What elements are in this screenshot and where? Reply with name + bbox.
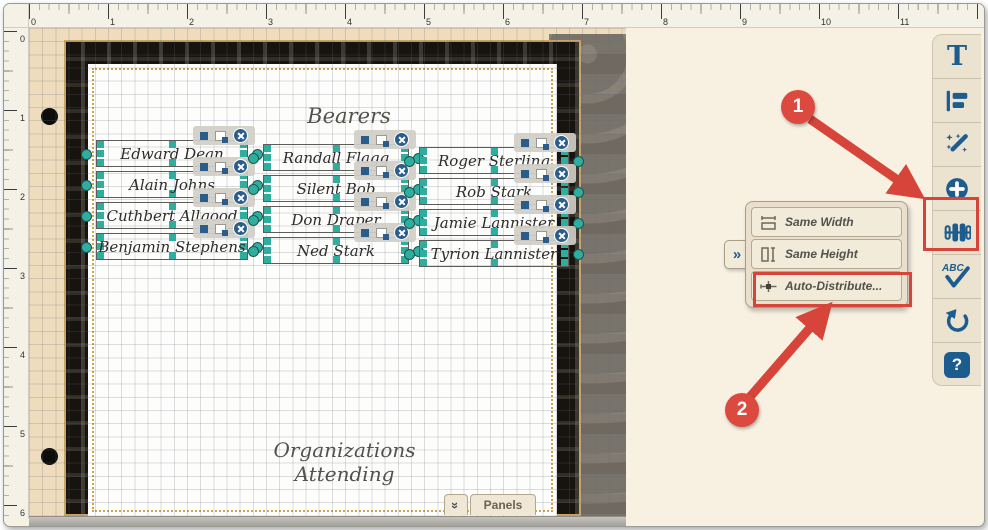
panels-tab-label: Panels <box>484 498 523 512</box>
duplicate-icon[interactable] <box>376 166 387 176</box>
text-object-label: Tyrion Lannister <box>431 245 558 263</box>
ruler-number: 0 <box>20 34 25 44</box>
ruler-number: 5 <box>20 429 25 439</box>
horizontal-scrollbar[interactable] <box>29 516 626 527</box>
annotation-box-distribute-tool <box>923 197 979 251</box>
app-window: 0 1 2 3 4 5 6 7 8 9 10 11 0 1 2 3 4 5 6 … <box>3 3 985 527</box>
object-mini-toolbar <box>193 157 255 176</box>
ruler-number: 0 <box>31 17 36 27</box>
style-icon[interactable] <box>361 229 369 237</box>
delete-icon[interactable] <box>554 166 569 181</box>
delete-icon[interactable] <box>394 132 409 147</box>
callout-number: 2 <box>737 399 748 421</box>
duplicate-icon[interactable] <box>215 131 226 141</box>
spellcheck-tool-button[interactable]: ABC <box>933 255 981 299</box>
menu-item-label: Same Width <box>785 215 854 229</box>
object-mini-toolbar <box>514 133 576 152</box>
magic-wand-icon <box>944 132 970 158</box>
duplicate-icon[interactable] <box>215 224 226 234</box>
chevron-double-down-icon: » <box>448 501 463 508</box>
panels-tab[interactable]: Panels <box>470 494 536 515</box>
text-object[interactable]: Benjamin Stephens <box>96 233 248 260</box>
help-tool-button[interactable]: ? <box>933 343 981 387</box>
delete-icon[interactable] <box>233 190 248 205</box>
spellcheck-icon: ABC <box>942 262 972 292</box>
ruler-number: 2 <box>189 17 194 27</box>
magic-wand-tool-button[interactable] <box>933 123 981 167</box>
ruler-number: 11 <box>900 17 909 27</box>
align-icon <box>944 88 970 114</box>
help-icon: ? <box>944 352 970 378</box>
vertical-ruler: 0 1 2 3 4 5 6 <box>4 28 29 519</box>
menu-item-label: Same Height <box>785 247 858 261</box>
style-icon[interactable] <box>200 132 208 140</box>
delete-icon[interactable] <box>233 159 248 174</box>
annotation-box-auto-distribute <box>753 272 912 307</box>
duplicate-icon[interactable] <box>376 135 387 145</box>
text-object-label: Ned Stark <box>297 242 375 260</box>
design-canvas[interactable]: Bearers Edward Dean Alain Johns Cuthbert… <box>29 28 626 516</box>
chevron-double-right-icon: » <box>733 246 741 263</box>
text-object[interactable]: Ned Stark <box>263 237 409 264</box>
style-icon[interactable] <box>361 136 369 144</box>
duplicate-icon[interactable] <box>536 231 547 241</box>
delete-icon[interactable] <box>554 197 569 212</box>
text-tool-icon: T <box>947 43 967 70</box>
align-tool-button[interactable] <box>933 79 981 123</box>
text-object[interactable]: Tyrion Lannister <box>419 240 569 267</box>
delete-icon[interactable] <box>233 128 248 143</box>
duplicate-icon[interactable] <box>215 193 226 203</box>
object-mini-toolbar <box>193 188 255 207</box>
ruler-number: 3 <box>268 17 273 27</box>
duplicate-icon[interactable] <box>376 228 387 238</box>
duplicate-icon[interactable] <box>376 197 387 207</box>
delete-icon[interactable] <box>554 135 569 150</box>
callout-number: 1 <box>793 96 804 118</box>
ruler-number: 2 <box>20 192 25 202</box>
duplicate-icon[interactable] <box>536 200 547 210</box>
ruler-number: 7 <box>584 17 589 27</box>
style-icon[interactable] <box>200 163 208 171</box>
punch-hole <box>41 108 58 125</box>
callout-step-1: 1 <box>781 90 815 124</box>
style-icon[interactable] <box>200 225 208 233</box>
ruler-number: 6 <box>505 17 510 27</box>
object-mini-toolbar <box>514 195 576 214</box>
ruler-number: 9 <box>742 17 747 27</box>
object-mini-toolbar <box>514 164 576 183</box>
ruler-number: 10 <box>821 17 831 27</box>
style-icon[interactable] <box>521 201 529 209</box>
menu-item-same-height[interactable]: Same Height <box>751 239 902 269</box>
menu-item-same-width[interactable]: Same Width <box>751 207 902 237</box>
duplicate-icon[interactable] <box>215 162 226 172</box>
style-icon[interactable] <box>361 167 369 175</box>
style-icon[interactable] <box>521 139 529 147</box>
ruler-number: 5 <box>426 17 431 27</box>
style-icon[interactable] <box>361 198 369 206</box>
object-mini-toolbar <box>354 130 416 149</box>
object-mini-toolbar <box>514 226 576 245</box>
style-icon[interactable] <box>521 170 529 178</box>
same-width-icon <box>760 214 777 231</box>
delete-icon[interactable] <box>554 228 569 243</box>
callout-step-2: 2 <box>725 393 759 427</box>
ruler-number: 1 <box>20 113 25 123</box>
rotate-tool-button[interactable] <box>933 299 981 343</box>
ruler-number: 4 <box>20 350 25 360</box>
horizontal-ruler: 0 1 2 3 4 5 6 7 8 9 10 11 <box>29 4 985 28</box>
ruler-number: 1 <box>110 17 115 27</box>
ruler-number: 4 <box>347 17 352 27</box>
style-icon[interactable] <box>521 232 529 240</box>
rotate-ccw-icon <box>944 308 970 334</box>
panels-collapse-button[interactable]: » <box>444 494 468 515</box>
duplicate-icon[interactable] <box>536 169 547 179</box>
ruler-corner <box>4 4 29 28</box>
organizations-title[interactable]: Organizations Attending <box>247 438 442 486</box>
delete-icon[interactable] <box>233 221 248 236</box>
ruler-number: 6 <box>20 508 25 518</box>
bearers-title[interactable]: Bearers <box>254 104 444 128</box>
text-object-label: Benjamin Stephens <box>98 238 245 256</box>
duplicate-icon[interactable] <box>536 138 547 148</box>
text-tool-button[interactable]: T <box>933 35 981 79</box>
object-mini-toolbar <box>193 219 255 238</box>
same-height-icon <box>760 246 777 263</box>
style-icon[interactable] <box>200 194 208 202</box>
ruler-number: 3 <box>20 271 25 281</box>
ruler-number: 8 <box>663 17 668 27</box>
punch-hole <box>41 448 58 465</box>
object-mini-toolbar <box>193 126 255 145</box>
